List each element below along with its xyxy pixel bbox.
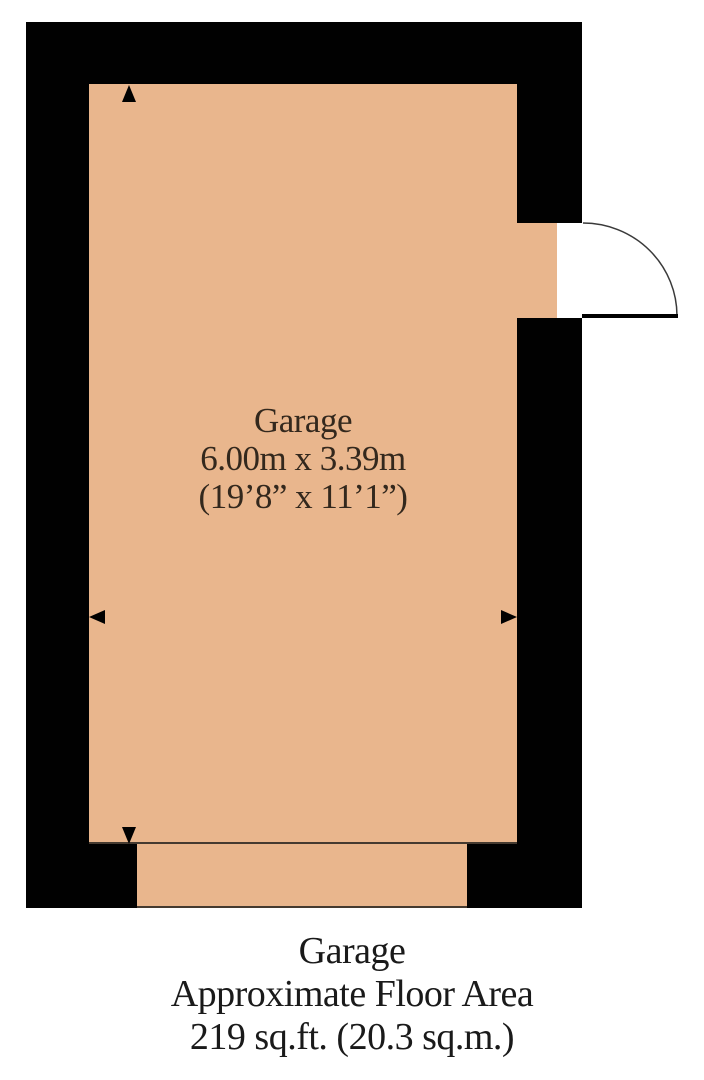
door-arc <box>583 223 677 316</box>
caption: Garage Approximate Floor Area 219 sq.ft.… <box>0 930 704 1059</box>
garage-door-opening <box>137 844 467 908</box>
floor-plan-page: Garage 6.00m x 3.39m (19’8” x 11’1”) Gar… <box>0 0 704 1080</box>
dimension-arrow-left-icon <box>89 610 105 624</box>
dimension-arrow-up-icon <box>122 85 136 102</box>
caption-area-value: 219 sq.ft. (20.3 sq.m.) <box>0 1016 704 1059</box>
caption-room-name: Garage <box>0 930 704 973</box>
room-label: Garage 6.00m x 3.39m (19’8” x 11’1”) <box>89 402 517 516</box>
room-dimensions-imperial: (19’8” x 11’1”) <box>89 478 517 516</box>
dimension-arrow-down-icon <box>122 827 136 844</box>
door-opening <box>557 223 582 318</box>
caption-subtitle: Approximate Floor Area <box>0 973 704 1016</box>
room-dimensions-metric: 6.00m x 3.39m <box>89 440 517 478</box>
room-name: Garage <box>89 402 517 440</box>
dimension-arrow-right-icon <box>501 610 517 624</box>
door-threshold <box>517 223 557 318</box>
